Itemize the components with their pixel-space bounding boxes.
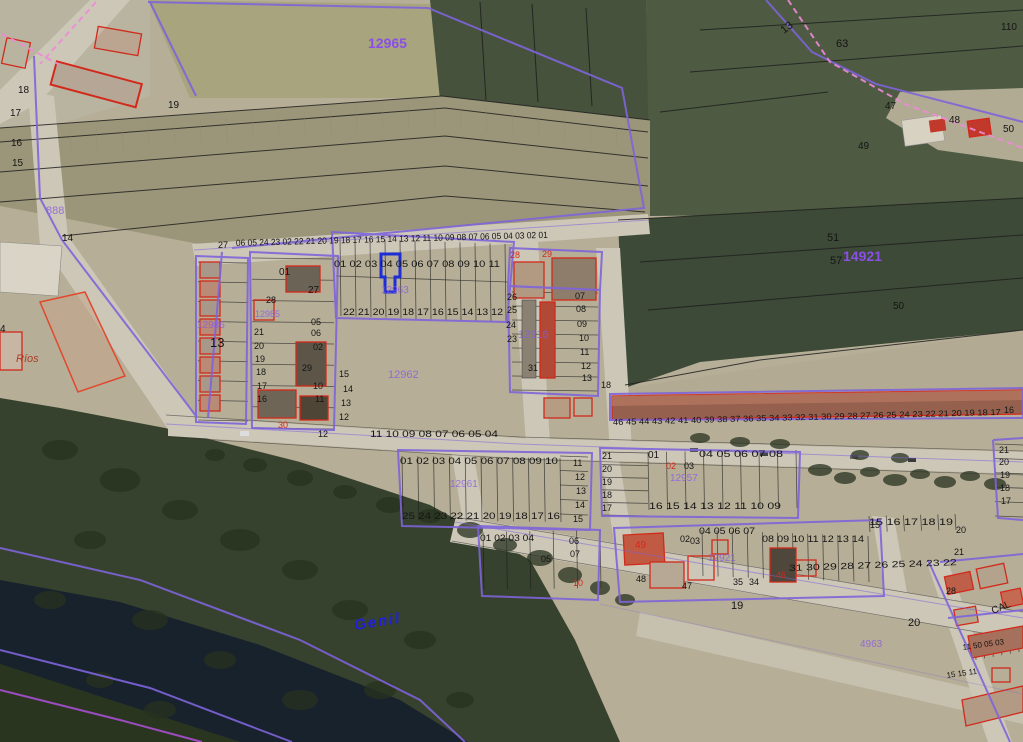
- parcel-number-label: 12: [318, 429, 328, 439]
- parcel-number-label: 20: [999, 457, 1009, 467]
- zone-code-label: 12961: [450, 479, 478, 490]
- parcel-number-label: 01: [279, 267, 291, 278]
- tree-canopy: [100, 468, 140, 492]
- parcel-number-row: 08 09 10 11 12 13 14: [762, 534, 864, 544]
- building-cell: [200, 357, 220, 373]
- parcel-number-label: 17: [602, 503, 612, 513]
- zone-code-label: 14921: [843, 248, 882, 264]
- parcel-number-label: 18: [602, 490, 612, 500]
- parcel-number-label: 12: [575, 472, 585, 482]
- tree-canopy: [287, 470, 313, 486]
- parcel-number-label: 34: [749, 577, 759, 587]
- parcel-number-label: 06: [311, 328, 321, 338]
- parcel-number-label: 16: [1004, 405, 1014, 415]
- tree-canopy: [333, 485, 357, 499]
- parcel-number-label: 35: [733, 577, 743, 587]
- parcel-number-label: 14: [575, 500, 585, 510]
- parcel-number-label: 19: [1000, 470, 1010, 480]
- zone-code-label: 12921: [708, 553, 736, 564]
- parcel-number-label: 49: [635, 540, 647, 551]
- parcel-number-label: 07: [570, 549, 580, 559]
- parcel-number-label: 21: [254, 327, 264, 337]
- building-cell: [200, 281, 220, 297]
- tree-canopy: [243, 458, 267, 472]
- parcel-number-label: 05: [541, 554, 551, 564]
- parcel-number-label: 13: [576, 486, 586, 496]
- parcel-number-label: 28: [266, 295, 276, 305]
- tree-canopy: [960, 471, 980, 481]
- building-white: [0, 242, 62, 296]
- parcel-number-label: 27: [308, 285, 320, 296]
- tree-canopy: [851, 450, 869, 460]
- parcel-number-label: 19: [731, 600, 743, 612]
- tree-canopy: [770, 439, 790, 449]
- parcel-number-label: 13: [341, 398, 351, 408]
- parcel-number-label: 05: [311, 317, 321, 327]
- parcel-number-row: 15 16 17 18 19: [869, 517, 953, 527]
- parcel-number-label: 29: [542, 249, 552, 259]
- place-name-label: Ríos: [16, 353, 39, 365]
- parcel-number-label: 20: [602, 464, 612, 474]
- parcel-number-row: 01 02 03 04: [480, 533, 534, 543]
- tree-canopy: [834, 472, 856, 484]
- parcel-number-label: 11: [580, 347, 589, 357]
- tree-canopy: [34, 591, 66, 609]
- parcel-number-label: 02: [313, 342, 323, 352]
- parcel-number-label: 18: [601, 380, 611, 390]
- tree-canopy: [132, 610, 168, 630]
- map-canvas[interactable]: 1296514921129631296212916129861298512961…: [0, 0, 1023, 742]
- parcel-number-label: 50: [1003, 124, 1015, 135]
- tree-canopy: [910, 469, 930, 479]
- parcel-number-label: 11: [573, 458, 582, 468]
- parcel-number-label: 49: [858, 141, 870, 152]
- parcel-number-label: 15: [12, 158, 24, 169]
- parcel-number-label: 57: [830, 255, 842, 267]
- parcel-number-row: 04 05 06 07: [699, 526, 755, 536]
- parcel-number-label: 20: [908, 617, 920, 629]
- tree-canopy: [204, 651, 236, 669]
- tree-canopy: [590, 581, 610, 595]
- building-cell: [200, 262, 220, 278]
- parcel-number-label: 20: [956, 525, 966, 535]
- parcel-number-label: 50: [893, 301, 905, 312]
- parcel-number-label: 15: [339, 369, 349, 379]
- parcel-number-label: 29: [302, 363, 312, 373]
- parcel-number-label: 51: [827, 232, 839, 244]
- parcel-number-label: 28: [946, 586, 956, 596]
- parcel-number-label: 03: [690, 536, 700, 546]
- tree-canopy: [205, 449, 225, 461]
- parcel-number-label: 14: [343, 384, 353, 394]
- tree-canopy: [934, 476, 956, 488]
- parcel-number-label: 23: [507, 334, 517, 344]
- tree-canopy: [42, 440, 78, 460]
- cadastral-map-view[interactable]: 1296514921129631296212916129861298512961…: [0, 0, 1023, 742]
- parcel-number-label: 07: [575, 291, 585, 301]
- parcel-number-label: 19: [168, 100, 180, 111]
- parcel-number-label: 63: [836, 38, 848, 50]
- parcel-number-label: 17: [1001, 496, 1011, 506]
- parcel-number-label: 16: [11, 138, 23, 149]
- parcel-number-label: 03: [684, 461, 694, 471]
- parcel-number-label: 47: [885, 101, 897, 112]
- zone-code-label: 12963: [381, 285, 409, 296]
- parcel-number-label: 11: [315, 394, 324, 404]
- tree-canopy: [860, 467, 880, 477]
- tree-canopy: [883, 474, 907, 486]
- parcel-number-row: 01 02 03 04 05 06 07 08 09 10 11: [334, 259, 500, 269]
- zone-code-label: 12957: [670, 473, 698, 484]
- parcel-number-label: 02: [680, 534, 690, 544]
- parcel-number-label: 16: [257, 394, 267, 404]
- parcel-number-label: 18: [256, 367, 266, 377]
- parcel-number-label: 26: [507, 292, 517, 302]
- zone-code-label: 12965: [368, 35, 407, 51]
- parcel-number-label: 27: [218, 240, 228, 250]
- zone-code-label: 12985: [255, 309, 280, 319]
- parcel-number-label: 17: [10, 108, 22, 119]
- tree-canopy: [282, 690, 318, 710]
- parcel-number-label: 13: [582, 373, 592, 383]
- parcel-number-label: 17: [257, 381, 267, 391]
- parcel-number-row: 11 10 09 08 07 06 05 04: [370, 429, 498, 439]
- parcel-number-label: 20: [254, 341, 264, 351]
- parcel-number-label: 25: [507, 305, 517, 315]
- parcel-number-label: 14: [62, 233, 74, 244]
- tree-canopy: [220, 529, 260, 551]
- parcel-number-label: 47: [682, 581, 692, 591]
- parcel-number-row: 01 02 03 04 05 06 07 08 09 10: [400, 456, 558, 466]
- parcel-number-label: 21: [602, 451, 612, 461]
- tree-canopy: [690, 433, 710, 443]
- parcel-number-row: 25 24 23 22 21 20 19 18 17 16: [402, 511, 560, 521]
- parcel-number-label: 31: [528, 363, 538, 373]
- parcel-number-label: 110: [1001, 22, 1017, 33]
- parcel-number-label: 18: [1000, 483, 1010, 493]
- parcel-number-label: 48: [636, 574, 646, 584]
- tree-canopy: [808, 464, 832, 476]
- parcel-number-label: 4: [0, 324, 6, 335]
- parcel-number-label: 46: [776, 570, 786, 580]
- parcel-number-label: 48: [949, 115, 961, 126]
- parcel-number-label: 02: [666, 461, 676, 471]
- parcel-number-label: 13: [210, 335, 224, 350]
- parcel-number-row: 22 21 20 19 18 17 16 15 14 13 12: [343, 307, 503, 317]
- parcel-number-label: 09: [577, 319, 587, 329]
- parcel-number-label: 21: [954, 547, 964, 557]
- zone-code-label: 12916: [518, 329, 549, 341]
- parcel-number-label: 10: [573, 578, 583, 588]
- zone-code-label: 12986: [197, 320, 225, 331]
- parcel-number-label: 06: [569, 536, 579, 546]
- tree-canopy: [282, 560, 318, 580]
- zone-code-label: 4963: [860, 639, 883, 650]
- parcel-number-label: 19: [602, 477, 612, 487]
- zone-code-label: 888: [46, 205, 64, 217]
- parcel-number-label: 12: [339, 412, 349, 422]
- tree-canopy: [162, 500, 198, 520]
- parcel-number-label: 30: [278, 420, 288, 430]
- parcel-number-label: 10: [313, 381, 323, 391]
- parcel-number-label: 18: [18, 85, 30, 96]
- tree-canopy: [404, 631, 436, 649]
- parcel-number-label: 01: [648, 450, 660, 461]
- parcel-number-label: 24: [506, 320, 516, 330]
- parcel-number-label: 08: [576, 304, 586, 314]
- tree-canopy: [730, 437, 750, 447]
- tree-canopy: [144, 701, 176, 719]
- parcel-number-row: 04 05 06 07 08: [699, 449, 783, 459]
- parcel-number-label: 12: [581, 361, 591, 371]
- tree-canopy: [446, 692, 474, 708]
- tree-canopy: [615, 594, 635, 606]
- parcel-number-label: 28: [510, 250, 520, 260]
- parcel-number-label: 10: [579, 333, 589, 343]
- tree-canopy: [74, 531, 106, 549]
- parcel-number-label: 15: [573, 514, 583, 524]
- parcel-number-label: 21: [999, 445, 1009, 455]
- zone-code-label: 12962: [388, 369, 419, 381]
- parcel-number-label: 19: [255, 354, 265, 364]
- parcel-number-row: 16 15 14 13 12 11 10 09: [649, 501, 781, 511]
- tree-canopy: [364, 681, 396, 699]
